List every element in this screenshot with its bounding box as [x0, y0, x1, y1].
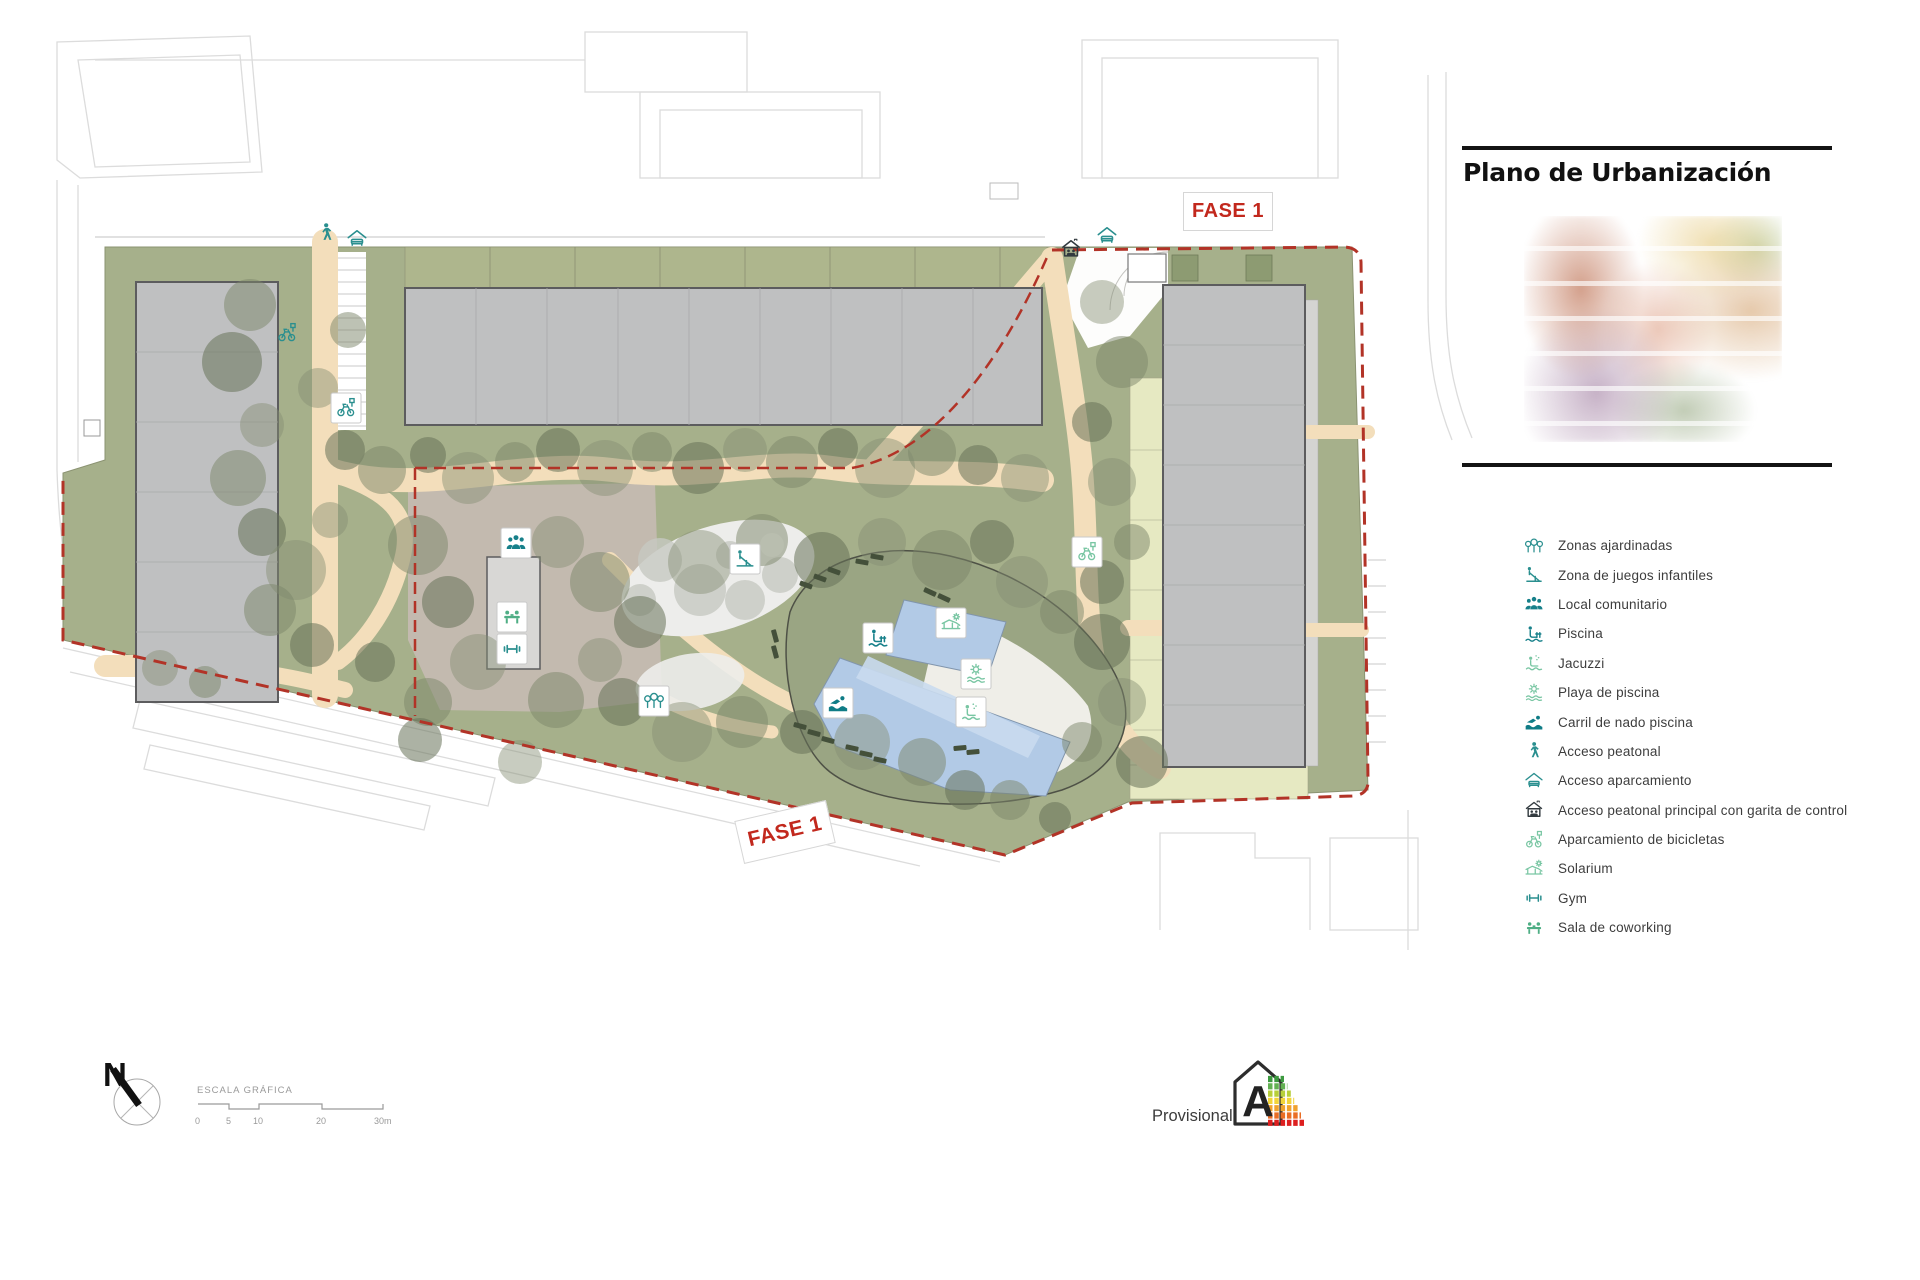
tree [312, 502, 348, 538]
energy-rating-letter: A [1242, 1077, 1274, 1126]
tree [224, 279, 276, 331]
sun-waves-icon [1524, 683, 1544, 703]
legend-item-label: Gym [1558, 891, 1587, 906]
swimmer-icon [1524, 712, 1544, 732]
guard-house-icon [1524, 800, 1544, 820]
legend-item-label: Acceso peatonal principal con garita de … [1558, 803, 1847, 818]
scale-bar: ESCALA GRÁFICA 0 5 10 20 30m [195, 1085, 392, 1126]
legend-item: Piscina [1524, 619, 1884, 648]
scale-tick: 20 [316, 1116, 326, 1126]
legend-item: Gym [1524, 884, 1884, 913]
coworking-icon [1524, 918, 1544, 938]
tree [912, 530, 972, 590]
tree [498, 740, 542, 784]
legend-item: Acceso peatonal principal con garita de … [1524, 796, 1884, 825]
car-canopy-icon [348, 231, 365, 245]
energy-status-text: Provisional [1152, 1107, 1233, 1126]
legend-item: Solarium [1524, 854, 1884, 883]
building-east [1163, 285, 1305, 767]
compass: N [103, 1056, 160, 1125]
tree [945, 770, 985, 810]
tree [1001, 454, 1049, 502]
guard-booth [1128, 254, 1166, 282]
tree [1072, 402, 1112, 442]
tree [898, 738, 946, 786]
legend-item: Acceso peatonal [1524, 737, 1884, 766]
people-icon [501, 528, 531, 558]
tree [970, 520, 1014, 564]
car-canopy-icon [1098, 228, 1115, 242]
dumbbell-icon [1524, 888, 1544, 908]
tree [1098, 678, 1146, 726]
swimmer-icon [823, 688, 853, 718]
tree [1062, 722, 1102, 762]
tree [528, 672, 584, 728]
sun-waves-icon [961, 659, 991, 689]
site-plan-document: N ESCALA GRÁFICA 0 5 10 20 30m Plano de … [0, 0, 1920, 1280]
legend-item-label: Solarium [1558, 861, 1613, 876]
tree [330, 312, 366, 348]
legend-item: Local comunitario [1524, 590, 1884, 619]
tree [614, 596, 666, 648]
tree [818, 428, 858, 468]
tree [570, 552, 630, 612]
legend-item: Zonas ajardinadas [1524, 531, 1884, 560]
scale-tick: 30m [374, 1116, 392, 1126]
playground-slide-icon [1524, 565, 1544, 585]
tree [1074, 614, 1130, 670]
legend-item-label: Zona de juegos infantiles [1558, 568, 1713, 583]
tree [632, 432, 672, 472]
rendering-thumbnail [1524, 216, 1782, 442]
coworking-icon [497, 602, 527, 632]
trees-icon [1524, 536, 1544, 556]
phase-label-text: FASE 1 [1192, 200, 1264, 223]
tree [1096, 336, 1148, 388]
tree [672, 442, 724, 494]
rendering-floor-lines [1524, 216, 1782, 442]
tree [1116, 736, 1168, 788]
legend-item-label: Acceso peatonal [1558, 744, 1661, 759]
jacuzzi-icon [1524, 653, 1544, 673]
building-north [405, 288, 1042, 425]
tree [1039, 802, 1071, 834]
tree [442, 452, 494, 504]
jacuzzi-icon [956, 697, 986, 727]
legend-item-label: Local comunitario [1558, 597, 1667, 612]
tree [388, 515, 448, 575]
legend-item-label: Playa de piscina [1558, 685, 1660, 700]
phase-label-top: FASE 1 [1183, 192, 1273, 231]
slide-icon [730, 544, 760, 574]
tree [290, 623, 334, 667]
tree [578, 638, 622, 682]
tree [240, 403, 284, 447]
energy-rating-label: A [1222, 1046, 1362, 1131]
tree [536, 428, 580, 472]
tree [766, 436, 818, 488]
sun-lounger-icon [1524, 859, 1544, 879]
tree [1080, 280, 1124, 324]
legend-item-label: Piscina [1558, 626, 1603, 641]
bicycle-icon [1072, 537, 1102, 567]
legend-item: Jacuzzi [1524, 649, 1884, 678]
tree [668, 530, 732, 594]
page-title: Plano de Urbanización [1463, 158, 1843, 187]
legend-item-label: Zonas ajardinadas [1558, 538, 1672, 553]
pedestrian-icon [1524, 741, 1544, 761]
legend-item: Carril de nado piscina [1524, 707, 1884, 736]
dumbbell-icon [497, 634, 527, 664]
legend-item: Playa de piscina [1524, 678, 1884, 707]
scale-tick: 0 [195, 1116, 200, 1126]
tree [189, 666, 221, 698]
pool-person-icon [863, 623, 893, 653]
legend-item: Acceso aparcamiento [1524, 766, 1884, 795]
tree [958, 445, 998, 485]
legend-item-label: Aparcamiento de bicicletas [1558, 832, 1725, 847]
tree [532, 516, 584, 568]
tree [495, 442, 535, 482]
legend: Zonas ajardinadas Zona de juegos infanti… [1524, 531, 1884, 942]
tree [244, 584, 296, 636]
trees-icon [639, 686, 669, 716]
phase-label-text: FASE 1 [746, 812, 825, 852]
scale-tick: 10 [253, 1116, 263, 1126]
tree [355, 642, 395, 682]
legend-item-label: Jacuzzi [1558, 656, 1604, 671]
guard-house-icon [1062, 239, 1079, 256]
tree [1114, 524, 1150, 560]
legend-item-label: Acceso aparcamiento [1558, 773, 1692, 788]
lounger-icon [936, 608, 966, 638]
pool-person-icon [1524, 624, 1544, 644]
tree [398, 718, 442, 762]
tree [723, 428, 767, 472]
tree [990, 780, 1030, 820]
legend-item: Aparcamiento de bicicletas [1524, 825, 1884, 854]
tree [996, 556, 1048, 608]
legend-item: Zona de juegos infantiles [1524, 560, 1884, 589]
tree [210, 450, 266, 506]
tree [1040, 590, 1084, 634]
title-rule-bottom [1462, 463, 1832, 467]
tree [142, 650, 178, 686]
legend-item: Sala de coworking [1524, 913, 1884, 942]
community-people-icon [1524, 594, 1544, 614]
scale-bar-caption: ESCALA GRÁFICA [197, 1085, 293, 1096]
scale-tick: 5 [226, 1116, 231, 1126]
title-rule-top [1462, 146, 1832, 150]
tree [202, 332, 262, 392]
bicycle-icon [331, 393, 361, 423]
legend-item-label: Sala de coworking [1558, 920, 1672, 935]
tree [422, 576, 474, 628]
tree [1088, 458, 1136, 506]
tree [908, 428, 956, 476]
bicycle-icon [1524, 830, 1544, 850]
legend-item-label: Carril de nado piscina [1558, 715, 1693, 730]
car-canopy-icon [1524, 771, 1544, 791]
tree [716, 696, 768, 748]
tree [358, 446, 406, 494]
